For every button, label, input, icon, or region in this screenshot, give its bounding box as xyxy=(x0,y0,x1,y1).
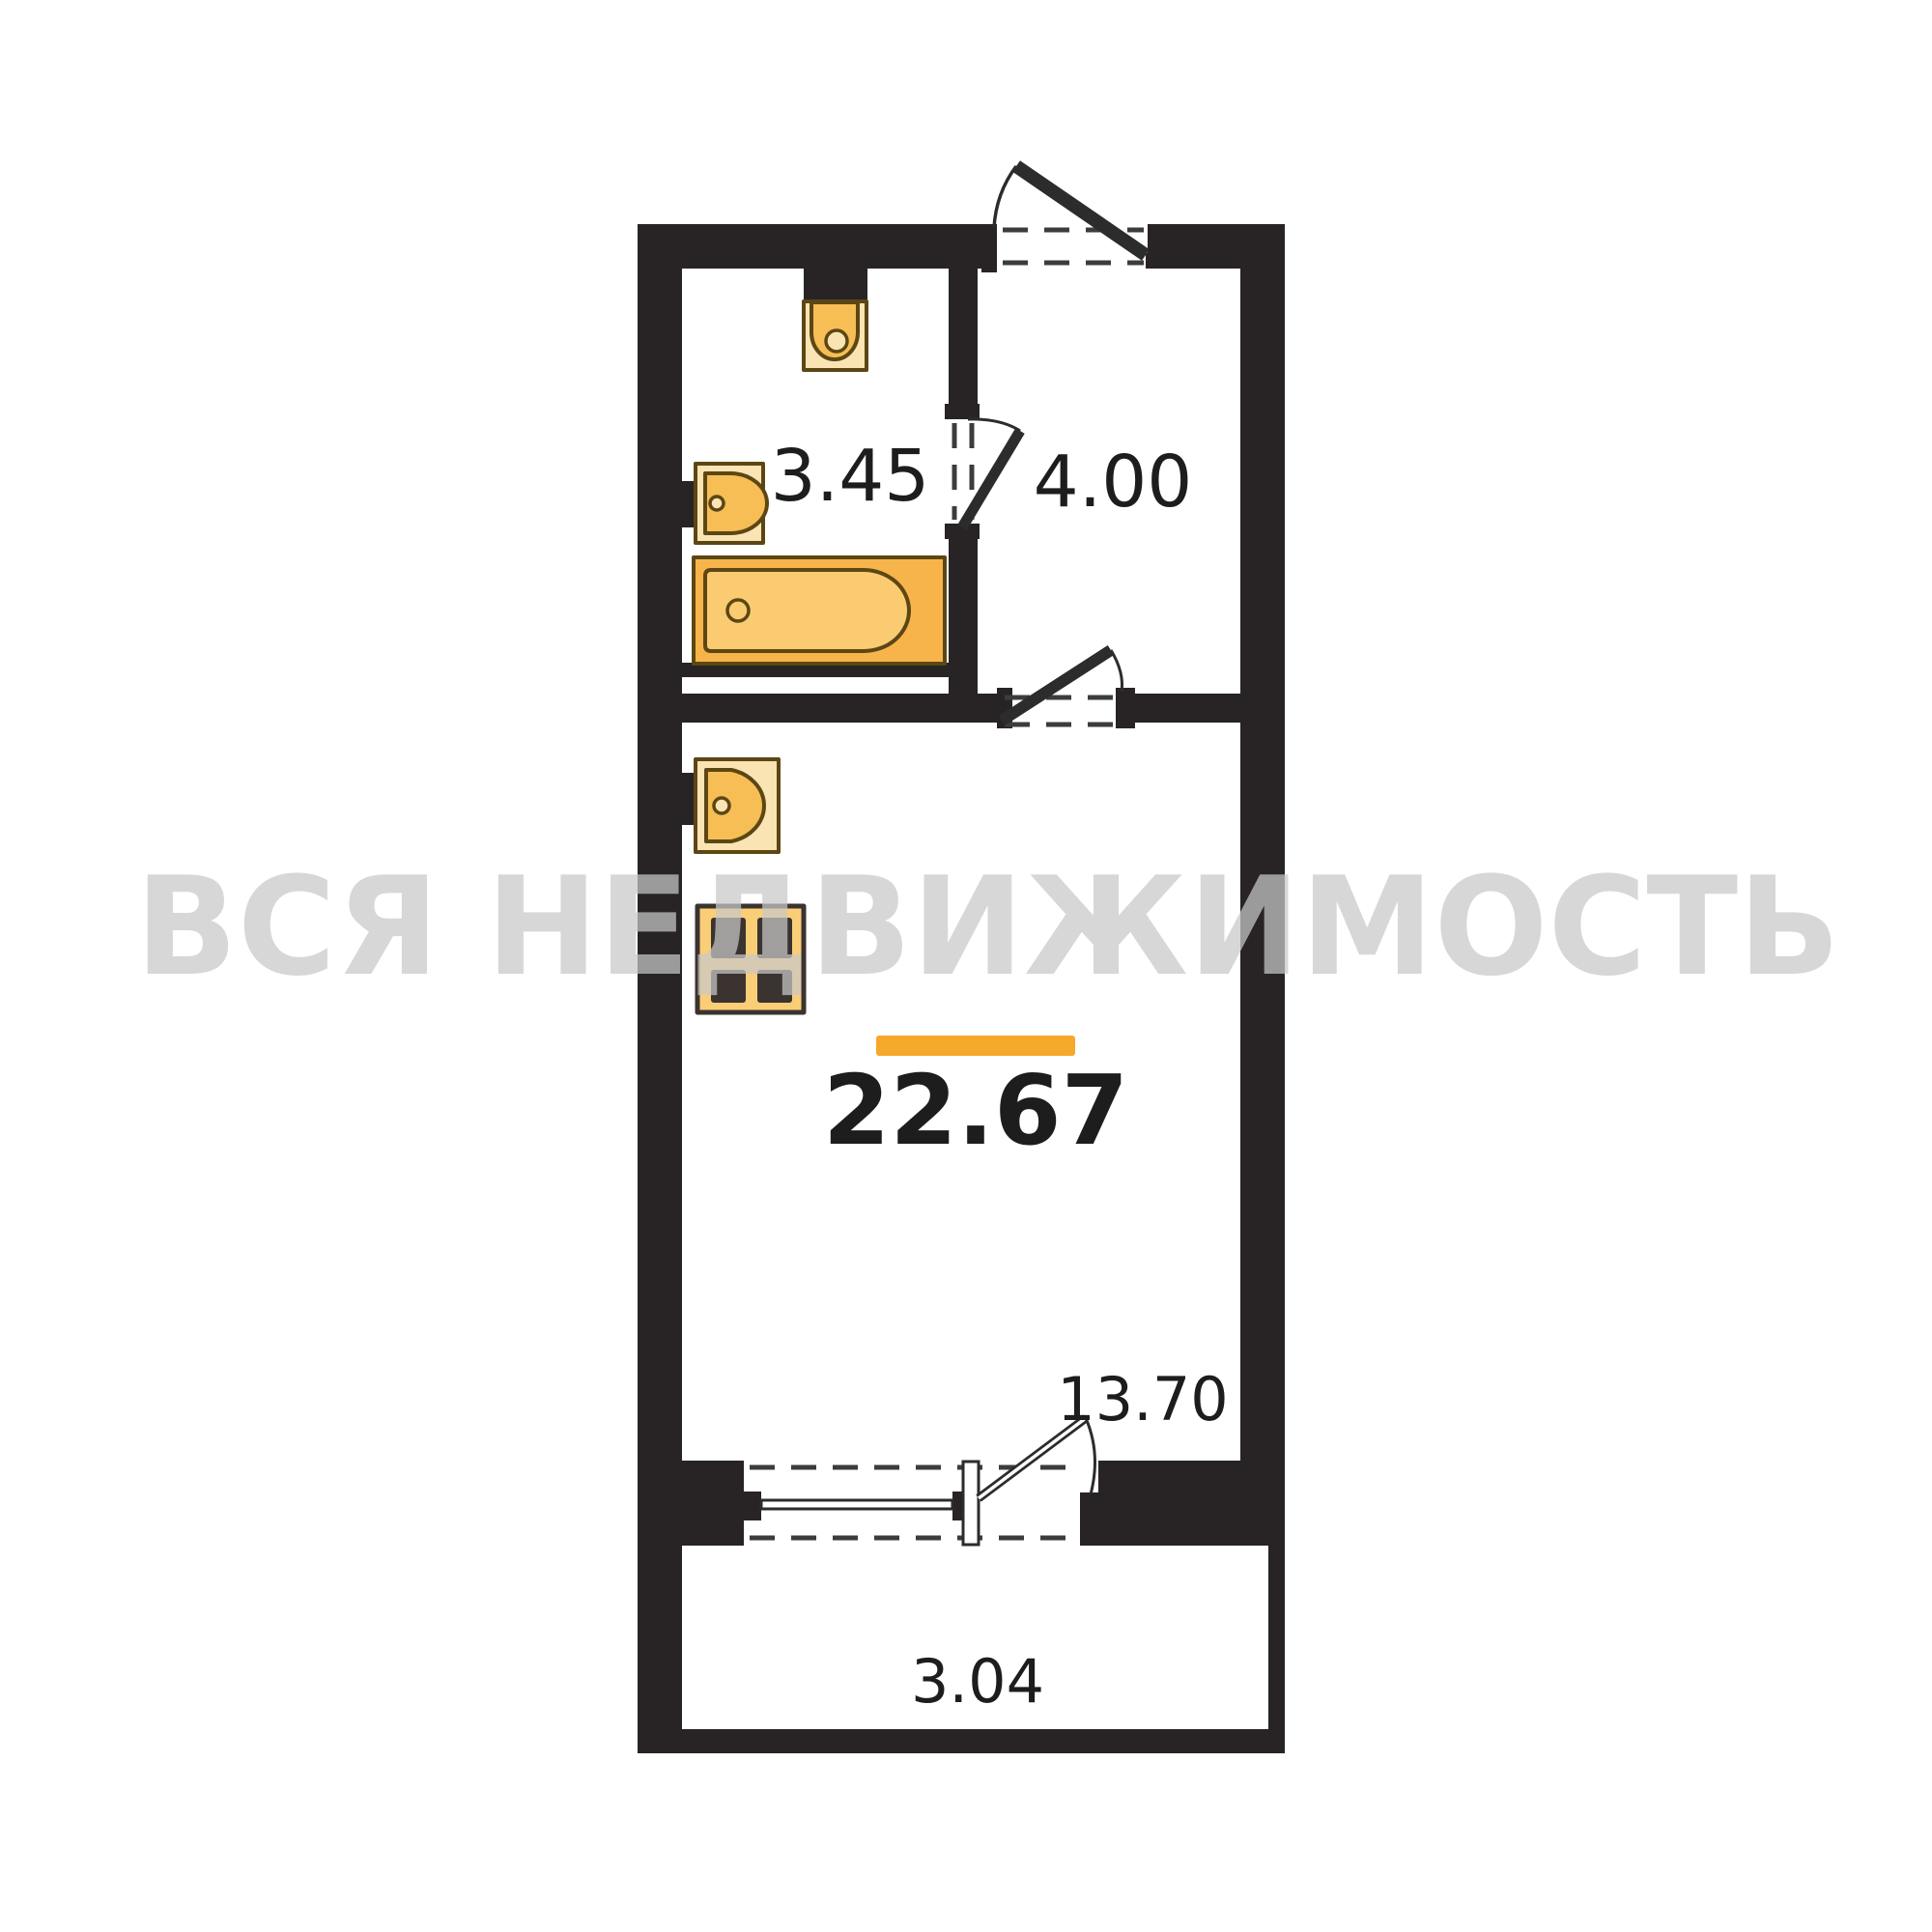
floor-plan-image: 3.45 4.00 13.70 3.04 22.67 ВСЯ НЕДВИЖИМО… xyxy=(0,0,1932,1932)
watermark-layer: ВСЯ НЕДВИЖИМОСТЬ xyxy=(0,0,1932,1932)
watermark-text: ВСЯ НЕДВИЖИМОСТЬ xyxy=(135,848,1840,1007)
